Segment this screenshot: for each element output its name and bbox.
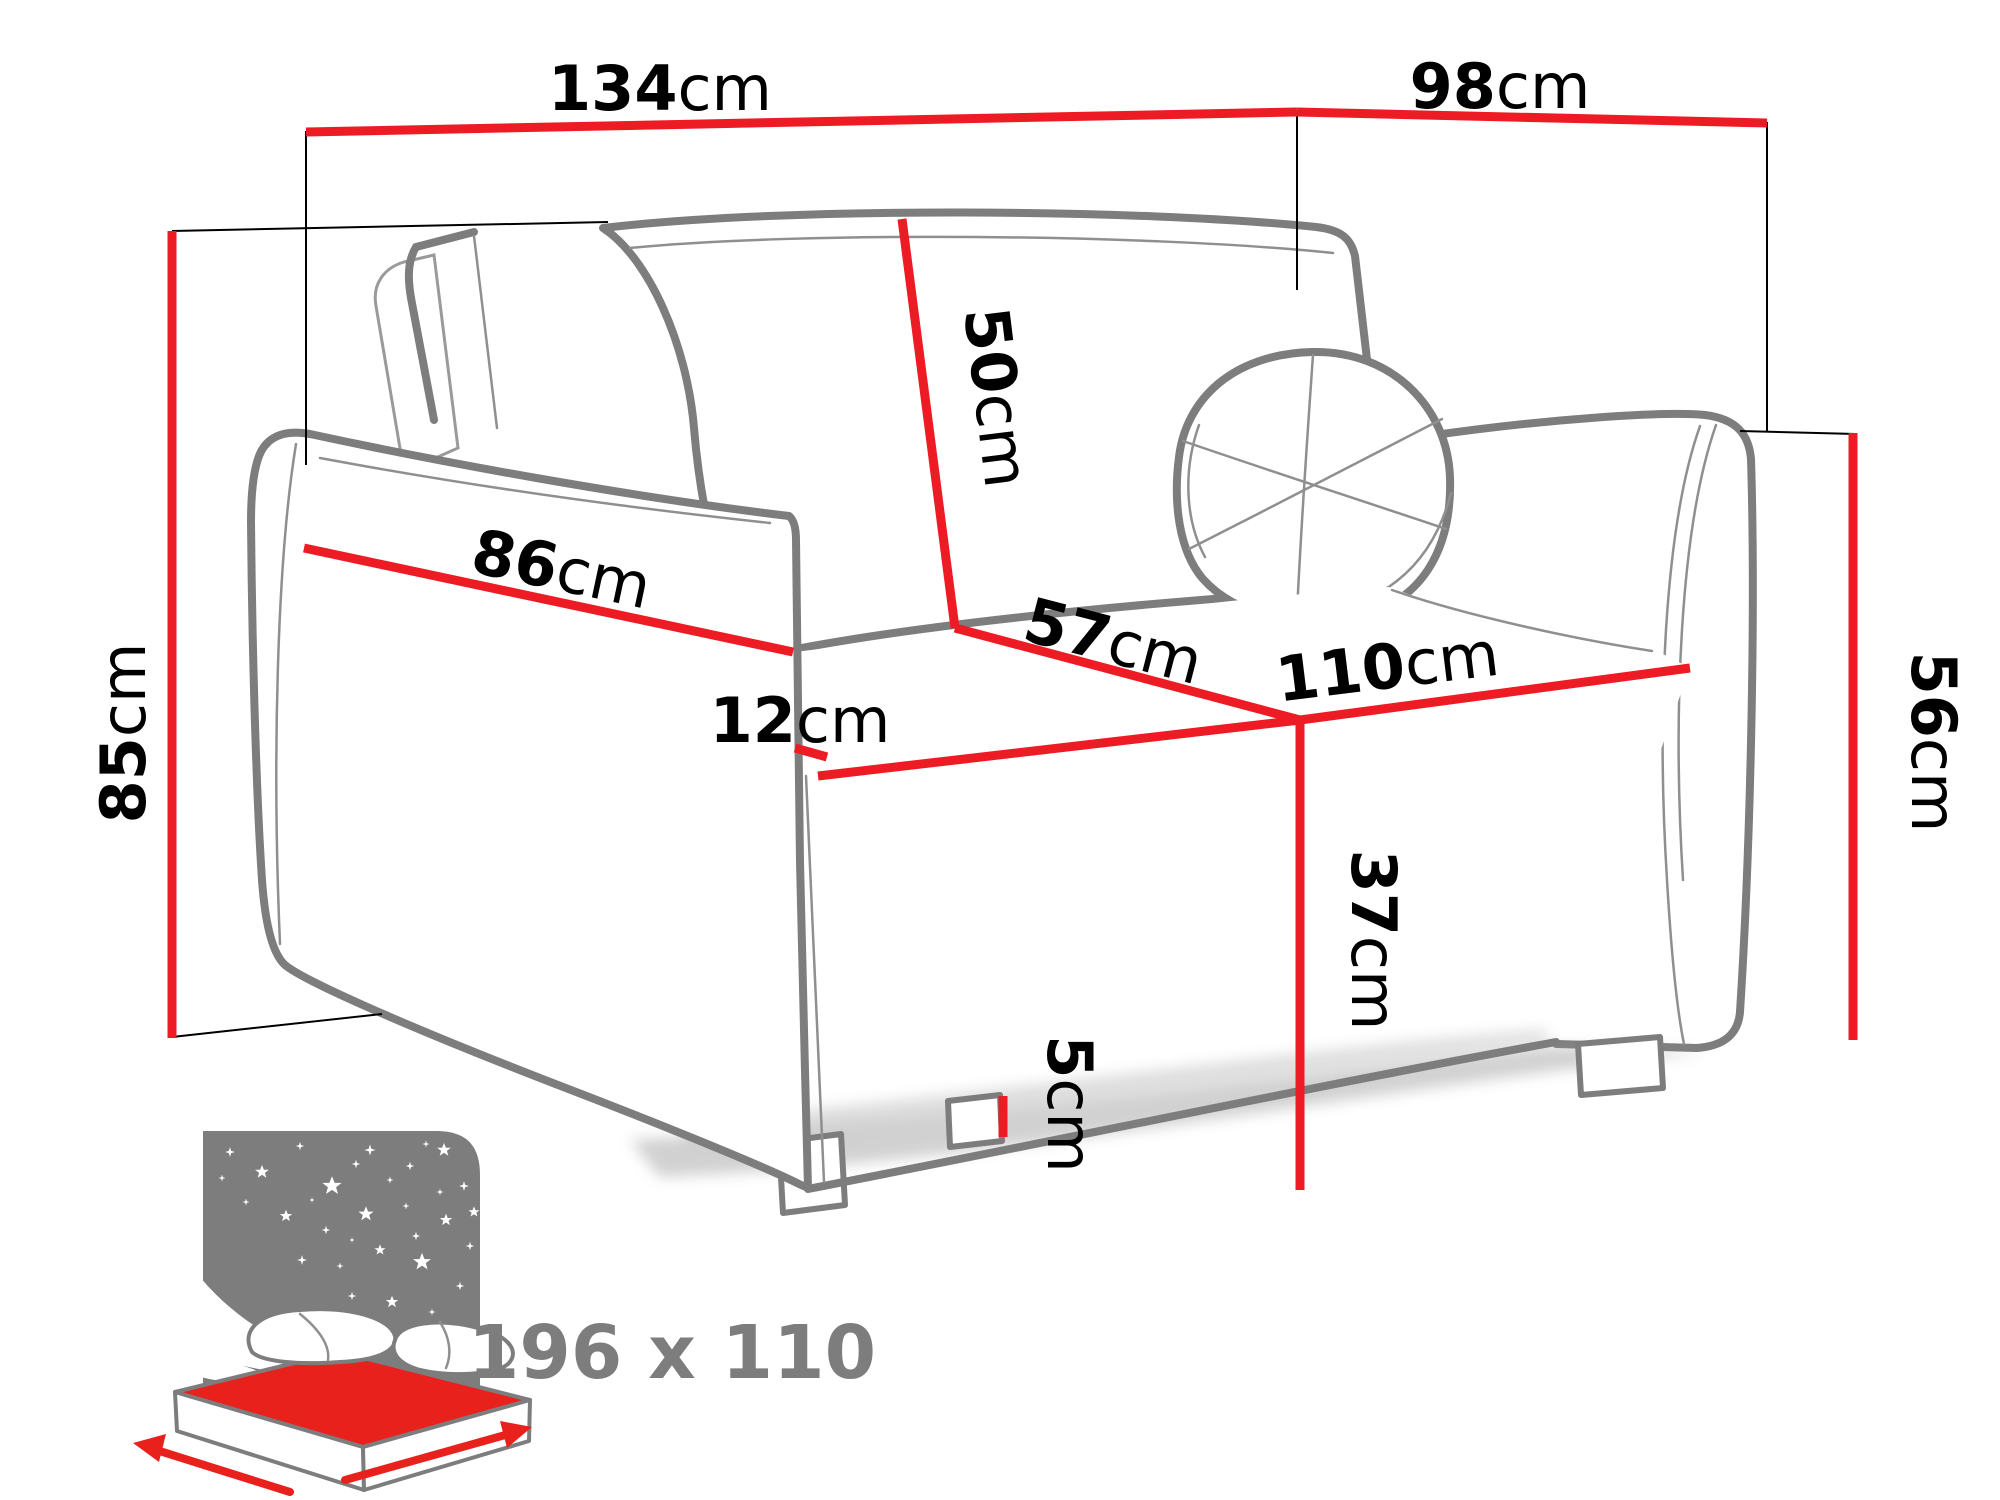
- label-depth-98: 98cm: [1410, 50, 1591, 123]
- dim-line-width-134: [306, 112, 1297, 132]
- back-panel-top-edge: [416, 232, 474, 247]
- label-base-37: 37cm: [1337, 850, 1410, 1031]
- extension-line: [172, 1014, 382, 1037]
- sofa-dimension-diagram: 134cm 98cm 85cm 50cm 86cm 12cm 57cm 110c…: [0, 0, 2000, 1500]
- label-side-56: 56cm: [1897, 652, 1970, 833]
- label-width-134: 134cm: [548, 52, 772, 125]
- leg-right: [1578, 1037, 1663, 1095]
- back-panel-seam: [474, 236, 497, 428]
- label-leg-5: 5cm: [1033, 1035, 1106, 1173]
- sleeping-area-label: 196 x 110: [468, 1310, 876, 1396]
- label-height-85: 85cm: [87, 643, 160, 824]
- sleeping-area-icon: 196 x 110: [125, 1131, 876, 1492]
- width-arrow-head: [133, 1434, 166, 1462]
- extension-line: [172, 222, 608, 231]
- leg-front-middle: [948, 1095, 1002, 1147]
- back-panel-outer: [375, 255, 458, 472]
- diagram-canvas: 134cm 98cm 85cm 50cm 86cm 12cm 57cm 110c…: [0, 0, 2000, 1500]
- label-armrest-12: 12cm: [710, 684, 891, 757]
- extension-line: [1740, 431, 1856, 434]
